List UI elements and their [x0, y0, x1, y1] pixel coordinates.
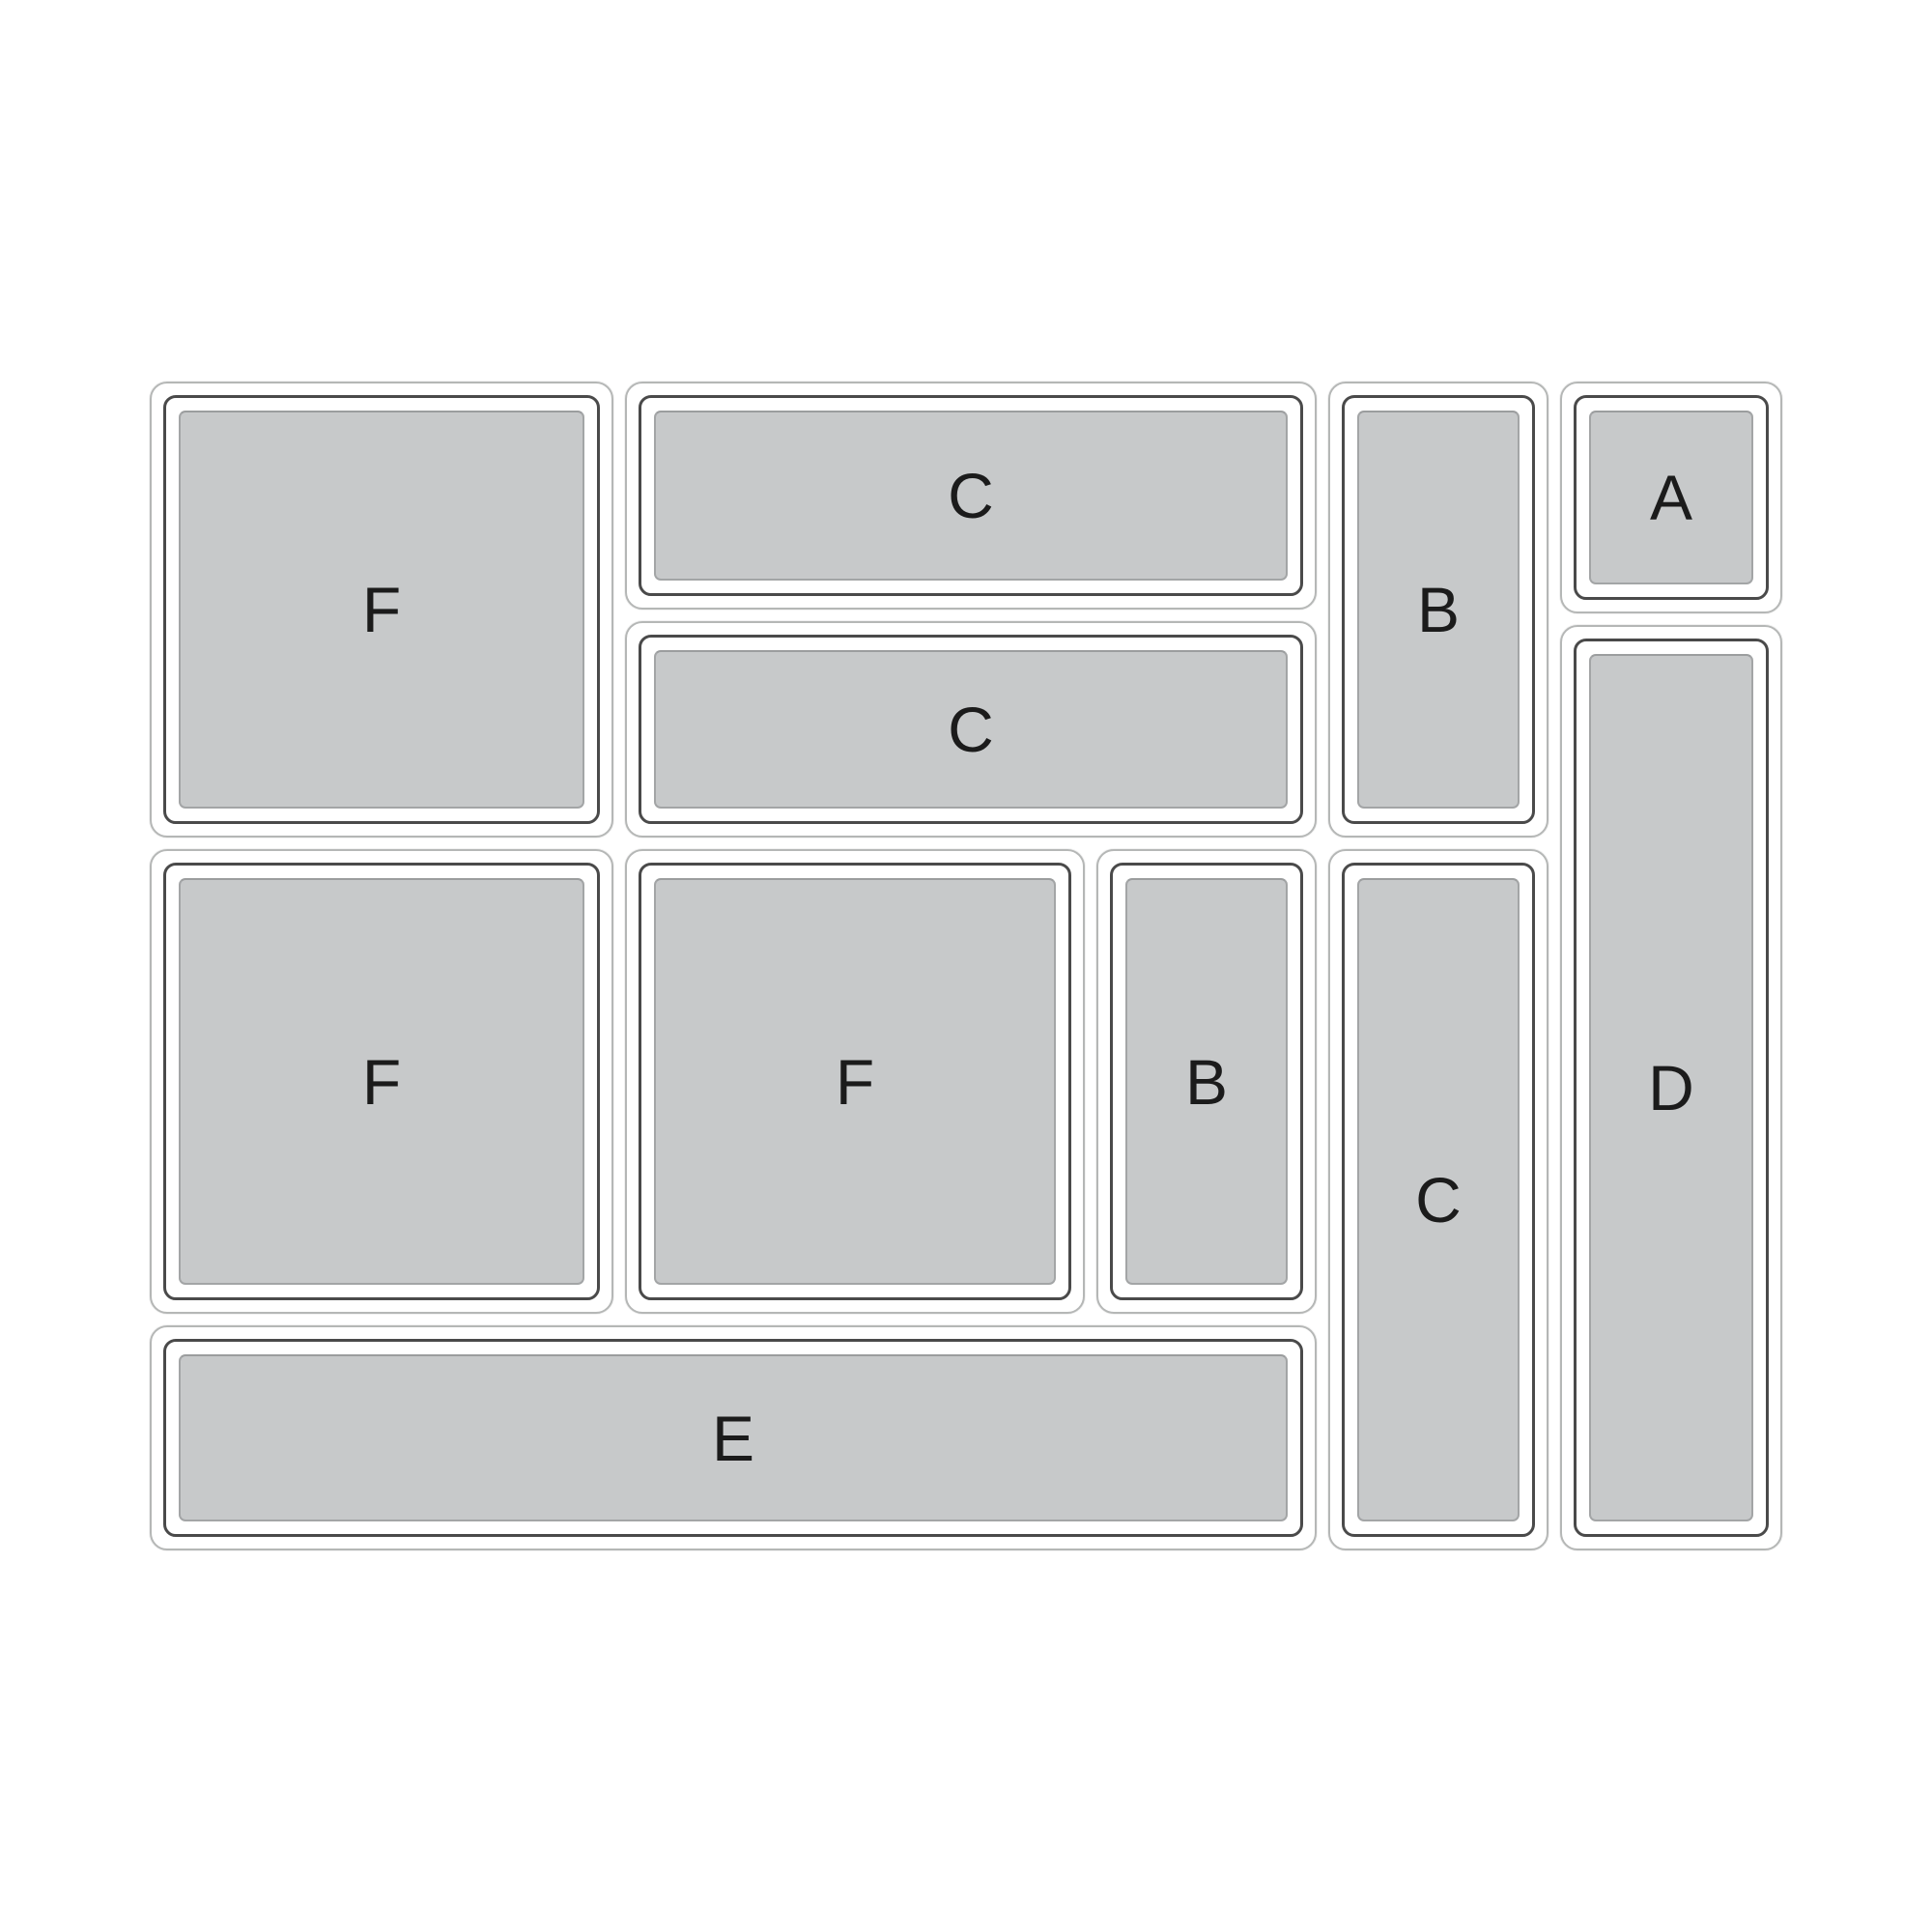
- tray-label: E: [712, 1406, 754, 1470]
- tray-base: B: [1357, 411, 1520, 809]
- tray-inner-wall: F: [163, 395, 600, 824]
- tray-e1: E: [150, 1325, 1317, 1550]
- tray-inner-wall: A: [1574, 395, 1769, 600]
- tray-inner-wall: F: [163, 863, 600, 1300]
- tray-b2: B: [1096, 849, 1317, 1314]
- tray-inner-wall: E: [163, 1339, 1303, 1537]
- tray-inner-wall: D: [1574, 639, 1769, 1537]
- tray-label: C: [948, 697, 994, 761]
- tray-inner-wall: C: [1342, 863, 1535, 1537]
- tray-inner-wall: B: [1342, 395, 1535, 824]
- tray-f2: F: [150, 849, 613, 1314]
- tray-base: C: [654, 411, 1288, 581]
- tray-c1: C: [625, 382, 1317, 610]
- tray-a1: A: [1560, 382, 1782, 613]
- tray-base: D: [1589, 654, 1753, 1521]
- tray-layout-diagram: FCCBADFFBCE: [0, 0, 1932, 1932]
- tray-f3: F: [625, 849, 1085, 1314]
- tray-base: E: [179, 1354, 1288, 1521]
- tray-label: C: [948, 464, 994, 527]
- tray-c2: C: [625, 621, 1317, 838]
- tray-label: B: [1417, 578, 1460, 641]
- tray-inner-wall: C: [639, 395, 1303, 596]
- tray-inner-wall: B: [1110, 863, 1303, 1300]
- tray-label: D: [1648, 1056, 1694, 1120]
- tray-base: B: [1125, 878, 1288, 1285]
- tray-b1: B: [1328, 382, 1548, 838]
- tray-inner-wall: F: [639, 863, 1071, 1300]
- tray-base: C: [654, 650, 1288, 809]
- tray-base: F: [654, 878, 1056, 1285]
- tray-label: B: [1185, 1050, 1228, 1114]
- tray-c3: C: [1328, 849, 1548, 1550]
- tray-base: F: [179, 411, 584, 809]
- tray-label: F: [362, 1050, 401, 1114]
- tray-inner-wall: C: [639, 635, 1303, 824]
- tray-f1: F: [150, 382, 613, 838]
- tray-base: A: [1589, 411, 1753, 584]
- tray-label: C: [1415, 1168, 1462, 1232]
- tray-base: C: [1357, 878, 1520, 1521]
- tray-d1: D: [1560, 625, 1782, 1550]
- tray-label: A: [1650, 466, 1692, 529]
- tray-base: F: [179, 878, 584, 1285]
- tray-label: F: [836, 1050, 874, 1114]
- tray-label: F: [362, 578, 401, 641]
